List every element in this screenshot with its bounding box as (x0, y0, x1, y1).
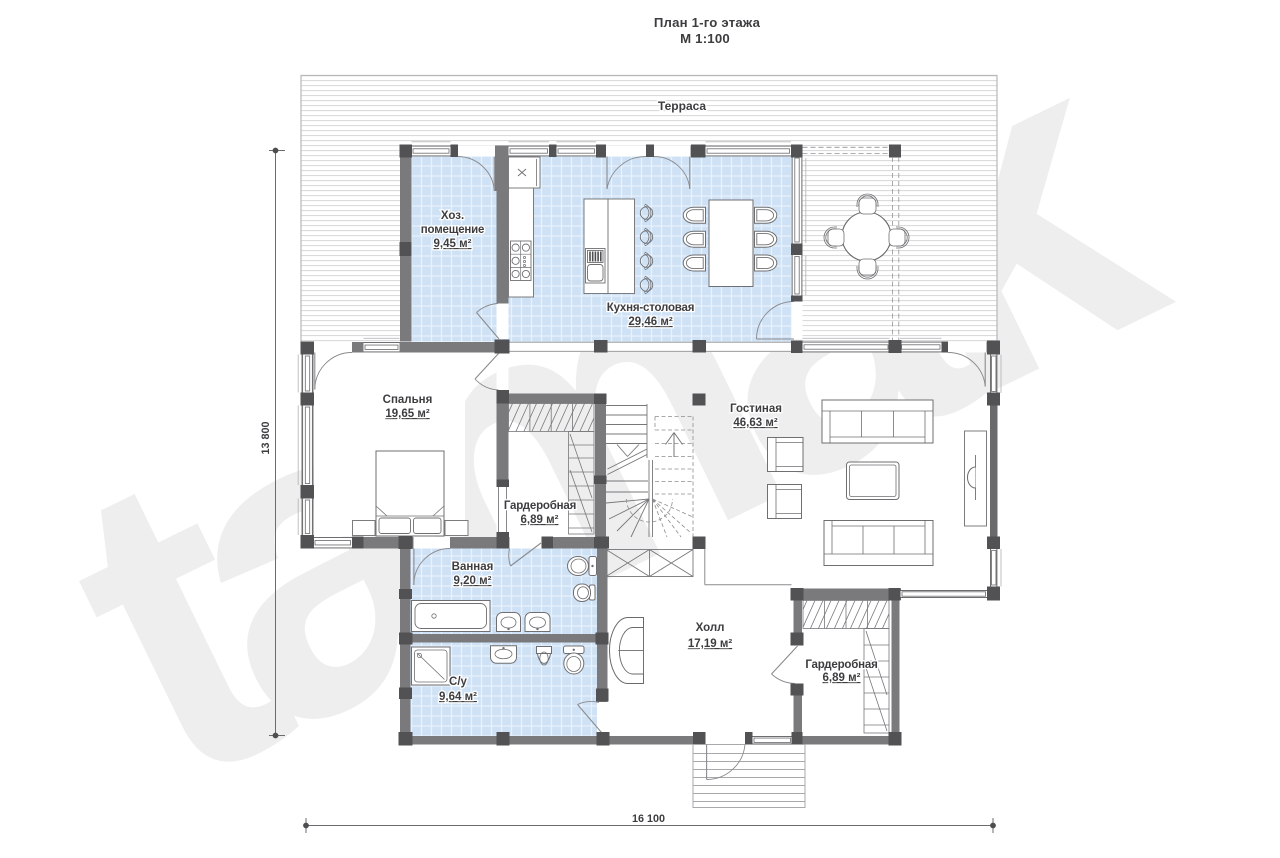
svg-text:19,65 м²: 19,65 м² (385, 408, 429, 420)
svg-text:Гардеробная: Гардеробная (805, 659, 877, 671)
svg-text:9,45 м²: 9,45 м² (434, 238, 472, 250)
svg-text:46,63 м²: 46,63 м² (733, 417, 777, 429)
svg-text:Кухня-столовая: Кухня-столовая (607, 302, 694, 314)
svg-text:Холл: Холл (696, 622, 725, 634)
svg-text:9,64 м²: 9,64 м² (439, 691, 477, 703)
svg-text:16 100: 16 100 (632, 813, 665, 825)
svg-text:9,20 м²: 9,20 м² (454, 575, 492, 587)
svg-text:Хоз.: Хоз. (441, 210, 464, 222)
svg-text:План 1-го этажа: План 1-го этажа (654, 15, 761, 30)
svg-text:помещение: помещение (421, 224, 484, 236)
svg-text:Терраса: Терраса (658, 99, 707, 113)
svg-text:17,19 м²: 17,19 м² (688, 638, 732, 650)
svg-text:13 800: 13 800 (260, 421, 272, 454)
svg-text:М 1:100: М 1:100 (680, 31, 730, 46)
svg-text:Гостиная: Гостиная (730, 403, 782, 415)
svg-text:29,46 м²: 29,46 м² (628, 316, 672, 328)
svg-text:Гардеробная: Гардеробная (504, 500, 576, 512)
svg-text:С/у: С/у (449, 676, 468, 688)
svg-text:6,89 м²: 6,89 м² (521, 514, 559, 526)
svg-text:6,89 м²: 6,89 м² (823, 672, 861, 684)
svg-text:Ванная: Ванная (452, 561, 494, 573)
svg-text:Спальня: Спальня (383, 394, 433, 406)
